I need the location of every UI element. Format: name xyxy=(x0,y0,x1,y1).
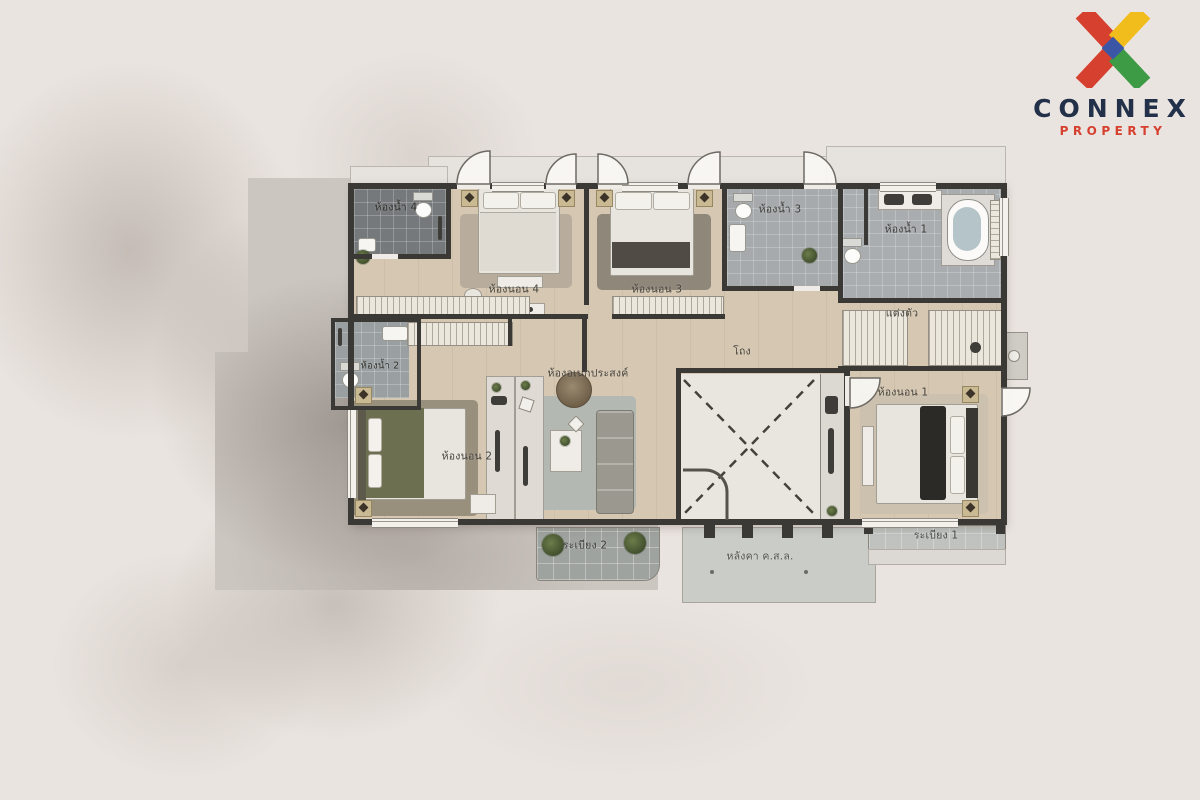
rail-runner xyxy=(828,428,834,474)
bed-1-nightstand xyxy=(962,386,979,403)
vase xyxy=(970,342,981,353)
brand-tagline: PROPERTY xyxy=(1028,124,1198,138)
wall xyxy=(864,189,868,245)
wall xyxy=(676,368,681,522)
hall-plant xyxy=(802,248,817,263)
window xyxy=(999,198,1009,256)
bed-4-nightstand xyxy=(461,190,478,207)
shelf-runner xyxy=(495,430,500,472)
wall xyxy=(582,314,587,372)
wall xyxy=(838,183,843,303)
bed-2-pillow xyxy=(368,418,382,452)
balcony-plant xyxy=(624,532,646,554)
wall xyxy=(612,314,725,319)
bed-2-nightstand xyxy=(355,500,372,517)
toilet xyxy=(842,238,862,264)
room-label-bathroom-3: ห้องน้ำ 3 xyxy=(759,201,802,218)
wall xyxy=(722,183,727,291)
window xyxy=(880,182,936,192)
room-label-balcony-1: ระเบียง 1 xyxy=(914,527,958,544)
sink xyxy=(729,224,746,252)
sofa xyxy=(596,410,634,514)
door-gap xyxy=(372,254,398,259)
bed-3-nightstand xyxy=(596,190,613,207)
wall xyxy=(838,298,1005,303)
brand-name: CONNEX xyxy=(1028,94,1198,123)
room-label-bathroom-4: ห้องน้ำ 4 xyxy=(375,199,418,216)
watercolor-wash xyxy=(430,590,820,780)
balcony-1-ledge xyxy=(868,549,1006,565)
vanity-basin xyxy=(912,194,932,205)
bed-1-pillow xyxy=(950,456,965,494)
bathtub-water xyxy=(953,207,981,251)
wall xyxy=(584,183,589,305)
room-label-bedroom-3: ห้องนอน 3 xyxy=(632,281,683,298)
wall xyxy=(446,183,451,259)
room-label-bathroom-2: ห้องน้ำ 2 xyxy=(361,359,400,374)
bedroom-2-cabinet xyxy=(470,494,496,514)
room-label-balcony-2: ระเบียง 2 xyxy=(563,537,607,554)
bed-4-pillow xyxy=(483,192,519,209)
roof-dot xyxy=(710,570,714,574)
bed-3-pillow xyxy=(615,192,652,210)
bed-1-headboard xyxy=(966,408,978,498)
wall xyxy=(676,368,846,373)
room-label-rc-roof: หลังคา ค.ส.ล. xyxy=(726,548,793,565)
door-gap xyxy=(804,183,836,189)
room-label-bathroom-1: ห้องน้ำ 1 xyxy=(885,221,928,238)
bed-3-pillow xyxy=(653,192,690,210)
door-gap xyxy=(1001,388,1007,416)
wall xyxy=(348,254,448,259)
logo-x-icon xyxy=(1065,12,1161,88)
bed-3-nightstand xyxy=(696,190,713,207)
door-gap xyxy=(688,183,720,189)
bed-1-pillow xyxy=(950,416,965,454)
column-post xyxy=(742,523,753,538)
shelf-divider xyxy=(515,376,544,520)
shelf-plant xyxy=(521,381,530,390)
wall xyxy=(838,366,1005,371)
room-label-dressing: แต่งตัว xyxy=(886,305,918,322)
bed-1-runner xyxy=(920,406,946,500)
bed-4-duvet xyxy=(480,212,556,271)
bed-2-pillow xyxy=(368,454,382,488)
toilet xyxy=(733,193,753,219)
shower-fixture xyxy=(438,216,442,240)
floor-plan-page: ห้องน้ำ 4 ห้องนอน 4 ห้องนอน 3 ห้องน้ำ 3 … xyxy=(0,0,1200,800)
door-gap xyxy=(794,286,820,291)
room-label-bedroom-4: ห้องนอน 4 xyxy=(489,281,540,298)
wall xyxy=(508,318,512,346)
window xyxy=(347,410,357,498)
column-post xyxy=(782,523,793,538)
rc-roof-slab xyxy=(682,527,876,603)
connex-logo: CONNEX PROPERTY xyxy=(1028,12,1198,138)
roof-dot xyxy=(804,570,808,574)
wardrobe-row xyxy=(407,322,513,346)
wardrobe xyxy=(928,310,1002,366)
bed-4-nightstand xyxy=(558,190,575,207)
room-label-hall: โถง xyxy=(733,343,751,360)
window xyxy=(492,182,544,192)
bed-3-foot-runner xyxy=(612,242,690,268)
tv-stand-plant xyxy=(560,436,570,446)
door-gap xyxy=(457,183,490,189)
column-post xyxy=(704,523,715,538)
bed-1-bench xyxy=(862,426,874,486)
room-label-multipurpose: ห้องอเนกประสงค์ xyxy=(548,365,629,382)
wall xyxy=(722,286,842,291)
balcony-plant xyxy=(542,534,564,556)
window xyxy=(622,182,678,192)
bed-2-headboard xyxy=(358,406,366,500)
rail-cabinet xyxy=(825,396,838,414)
bed-4-pillow xyxy=(520,192,556,209)
column-post xyxy=(822,523,833,538)
shelf-item xyxy=(491,396,507,405)
shelf-runner xyxy=(523,446,528,486)
door-gap xyxy=(845,376,850,406)
window xyxy=(372,518,458,528)
door-gap xyxy=(546,183,576,189)
rail-plant xyxy=(827,506,837,516)
dressing-stool xyxy=(1008,350,1020,362)
vanity-basin xyxy=(884,194,904,205)
bed-1-nightstand xyxy=(962,500,979,517)
room-label-bedroom-2: ห้องนอน 2 xyxy=(442,448,493,465)
shelf-plant xyxy=(492,383,501,392)
room-label-bedroom-1: ห้องนอน 1 xyxy=(878,384,929,401)
